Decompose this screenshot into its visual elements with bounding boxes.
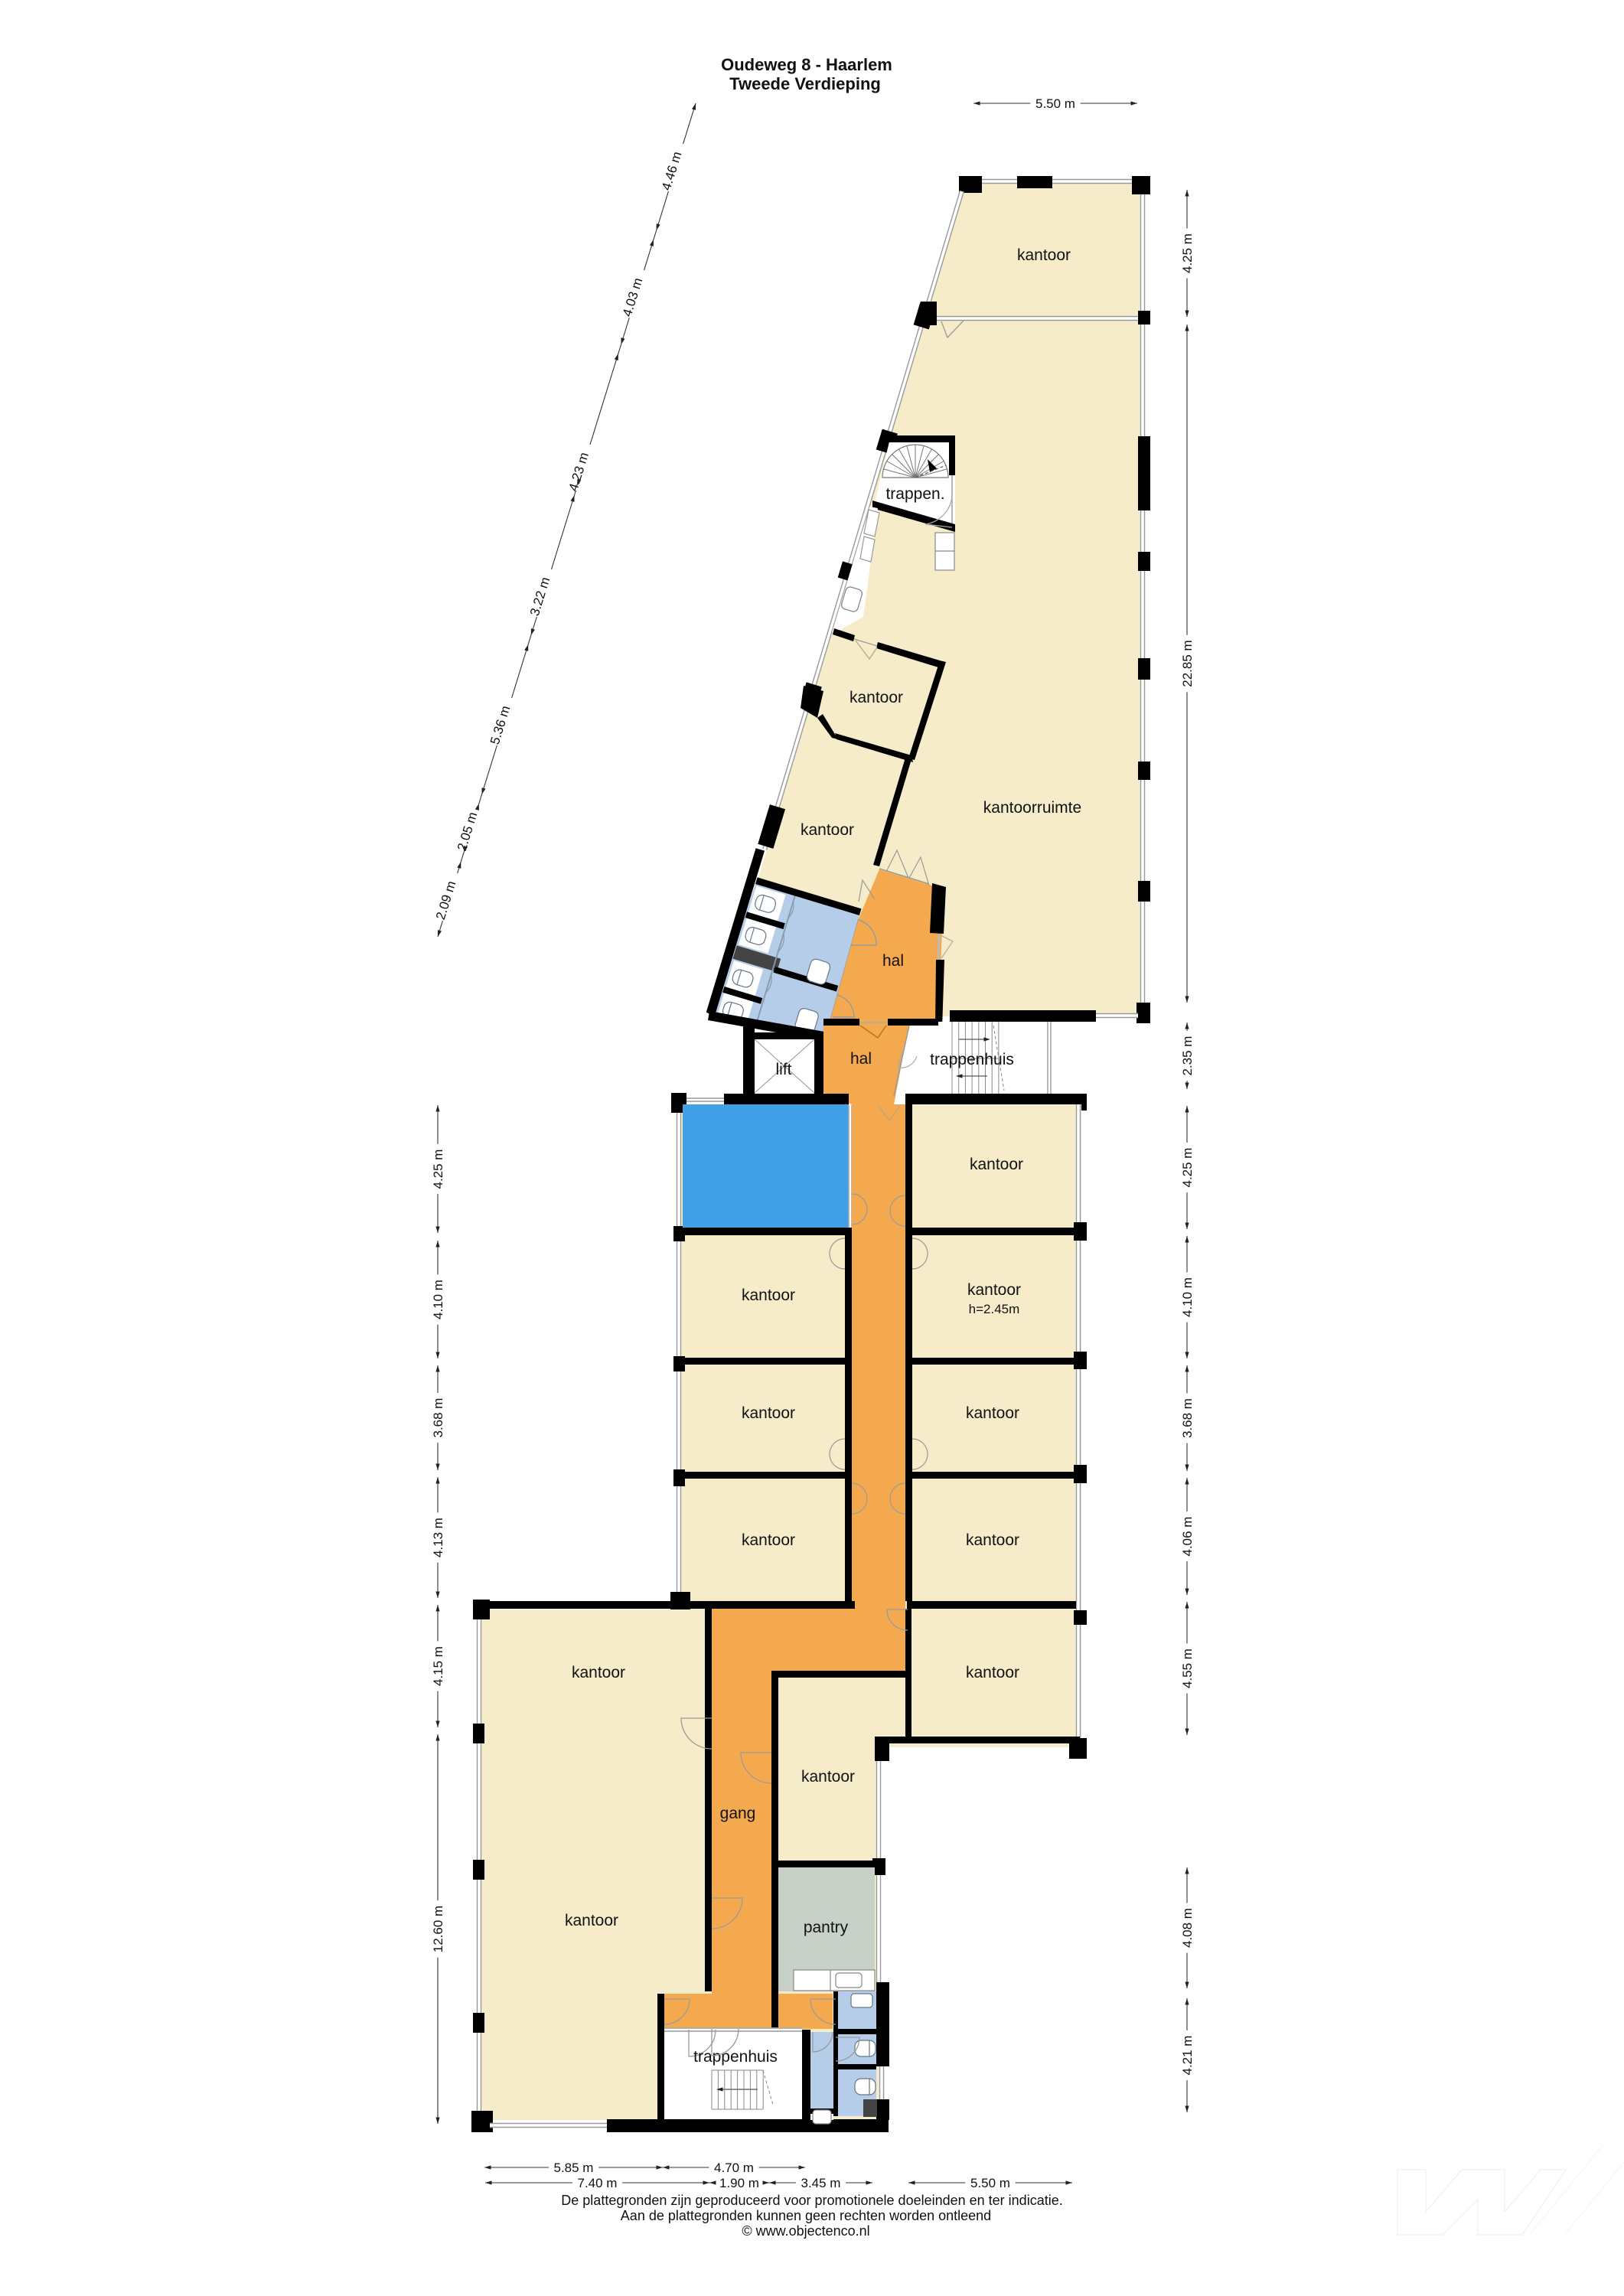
svg-text:De plattegronden zijn geproduc: De plattegronden zijn geproduceerd voor … [561, 2193, 1062, 2208]
svg-text:4.25 m: 4.25 m [1180, 1148, 1195, 1188]
svg-text:© www.objectenco.nl: © www.objectenco.nl [742, 2223, 869, 2239]
svg-text:lift: lift [776, 1061, 792, 1078]
svg-text:trappen.: trappen. [885, 485, 944, 503]
svg-text:4.06 m: 4.06 m [1180, 1517, 1195, 1557]
svg-text:kantoor: kantoor [966, 1531, 1019, 1549]
svg-text:kantoor: kantoor [966, 1404, 1019, 1422]
svg-text:kantoorruimte: kantoorruimte [983, 799, 1081, 817]
svg-text:12.60 m: 12.60 m [431, 1906, 445, 1952]
svg-text:hal: hal [850, 1050, 872, 1068]
svg-text:7.40 m: 7.40 m [578, 2176, 618, 2190]
svg-text:kantoor: kantoor [565, 1912, 618, 1929]
svg-text:3.68 m: 3.68 m [1180, 1398, 1195, 1438]
svg-text:22.85 m: 22.85 m [1180, 640, 1195, 687]
svg-text:hal: hal [882, 952, 904, 970]
svg-text:kantoor: kantoor [572, 1664, 625, 1681]
svg-text:pantry: pantry [804, 1919, 849, 1936]
svg-text:kantoor: kantoor [742, 1404, 795, 1422]
svg-text:kantoor: kantoor [801, 1768, 855, 1786]
svg-text:kantoor: kantoor [801, 821, 854, 839]
svg-text:kantoor: kantoor [850, 689, 903, 706]
svg-text:4.13 m: 4.13 m [431, 1518, 445, 1557]
svg-text:1.90 m: 1.90 m [719, 2176, 759, 2190]
svg-text:4.15 m: 4.15 m [431, 1646, 445, 1686]
svg-text:4.21 m: 4.21 m [1180, 2036, 1195, 2076]
svg-text:4.55 m: 4.55 m [1180, 1649, 1195, 1688]
svg-text:trappenhuis: trappenhuis [930, 1051, 1014, 1068]
svg-text:5.50 m: 5.50 m [1035, 96, 1075, 111]
svg-text:Oudeweg 8 - Haarlem: Oudeweg 8 - Haarlem [721, 55, 892, 74]
svg-text:4.10 m: 4.10 m [431, 1280, 445, 1319]
svg-text:4.25 m: 4.25 m [431, 1150, 445, 1189]
svg-text:gang: gang [720, 1805, 756, 1822]
svg-text:trappenhuis: trappenhuis [693, 2048, 778, 2066]
svg-text:4.10 m: 4.10 m [1180, 1277, 1195, 1317]
svg-text:kantoor: kantoor [966, 1664, 1019, 1681]
svg-text:kantoor: kantoor [742, 1287, 795, 1304]
svg-text:5.50 m: 5.50 m [970, 2176, 1010, 2190]
svg-text:kantoor: kantoor [1017, 246, 1071, 264]
svg-text:Tweede Verdieping: Tweede Verdieping [729, 74, 881, 93]
svg-text:3.45 m: 3.45 m [801, 2176, 841, 2190]
svg-text:4.25 m: 4.25 m [1180, 233, 1195, 273]
svg-text:4.70 m: 4.70 m [714, 2161, 754, 2175]
svg-text:h=2.45m: h=2.45m [969, 1302, 1020, 1316]
svg-text:kantoor: kantoor [970, 1156, 1023, 1173]
svg-text:4.08 m: 4.08 m [1180, 1908, 1195, 1948]
svg-text:3.68 m: 3.68 m [431, 1398, 445, 1438]
svg-text:2.35 m: 2.35 m [1180, 1036, 1195, 1076]
svg-text:Aan de plattegronden kunnen ge: Aan de plattegronden kunnen geen rechten… [621, 2208, 991, 2223]
svg-text:kantoor: kantoor [967, 1281, 1021, 1299]
svg-text:kantoor: kantoor [742, 1531, 795, 1549]
svg-text:5.85 m: 5.85 m [554, 2161, 594, 2175]
